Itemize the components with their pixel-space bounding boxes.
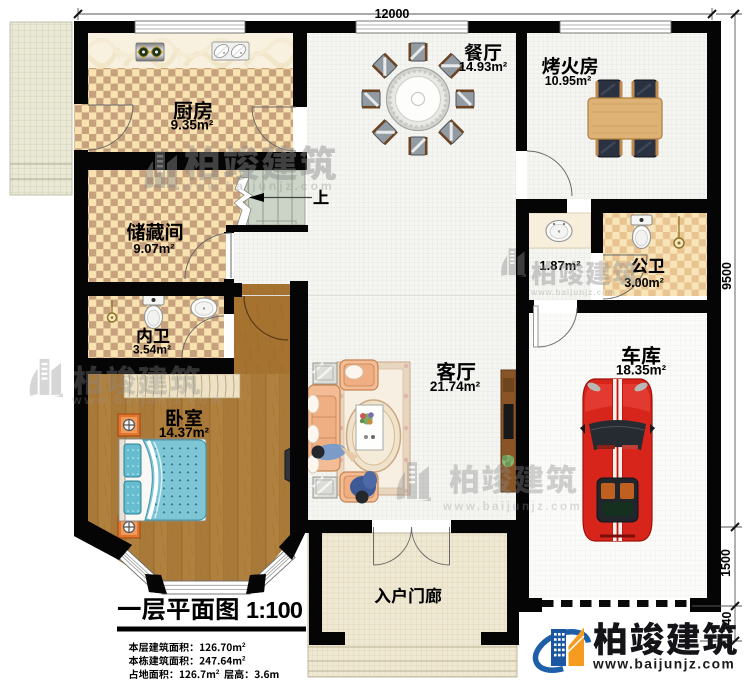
- svg-text:18.35m²: 18.35m²: [616, 363, 667, 378]
- svg-text:14.37m²: 14.37m²: [159, 425, 210, 440]
- svg-text:www.baijunjz.com: www.baijunjz.com: [530, 288, 616, 297]
- svg-text:www.baijunjz.com: www.baijunjz.com: [71, 393, 224, 407]
- svg-text:2: 2: [242, 656, 246, 663]
- svg-text:9500: 9500: [720, 262, 734, 290]
- svg-text:1500: 1500: [719, 549, 733, 577]
- svg-text:9.35m²: 9.35m²: [171, 118, 214, 133]
- svg-text:21.74m²: 21.74m²: [430, 379, 481, 394]
- svg-text:9.07m²: 9.07m²: [133, 241, 175, 256]
- svg-text:10.95m²: 10.95m²: [545, 74, 592, 88]
- svg-text:www.baijunjz.com: www.baijunjz.com: [182, 179, 335, 193]
- svg-text:www.baijunjz.com: www.baijunjz.com: [592, 657, 735, 672]
- svg-text:14.93m²: 14.93m²: [459, 59, 508, 74]
- svg-text:1:100: 1:100: [246, 597, 303, 623]
- svg-text:2: 2: [216, 669, 220, 676]
- svg-text:www.baijunjz.com: www.baijunjz.com: [442, 501, 582, 513]
- svg-text:2: 2: [242, 642, 246, 649]
- svg-text:3.54m²: 3.54m²: [133, 343, 171, 357]
- svg-text:12000: 12000: [375, 7, 410, 21]
